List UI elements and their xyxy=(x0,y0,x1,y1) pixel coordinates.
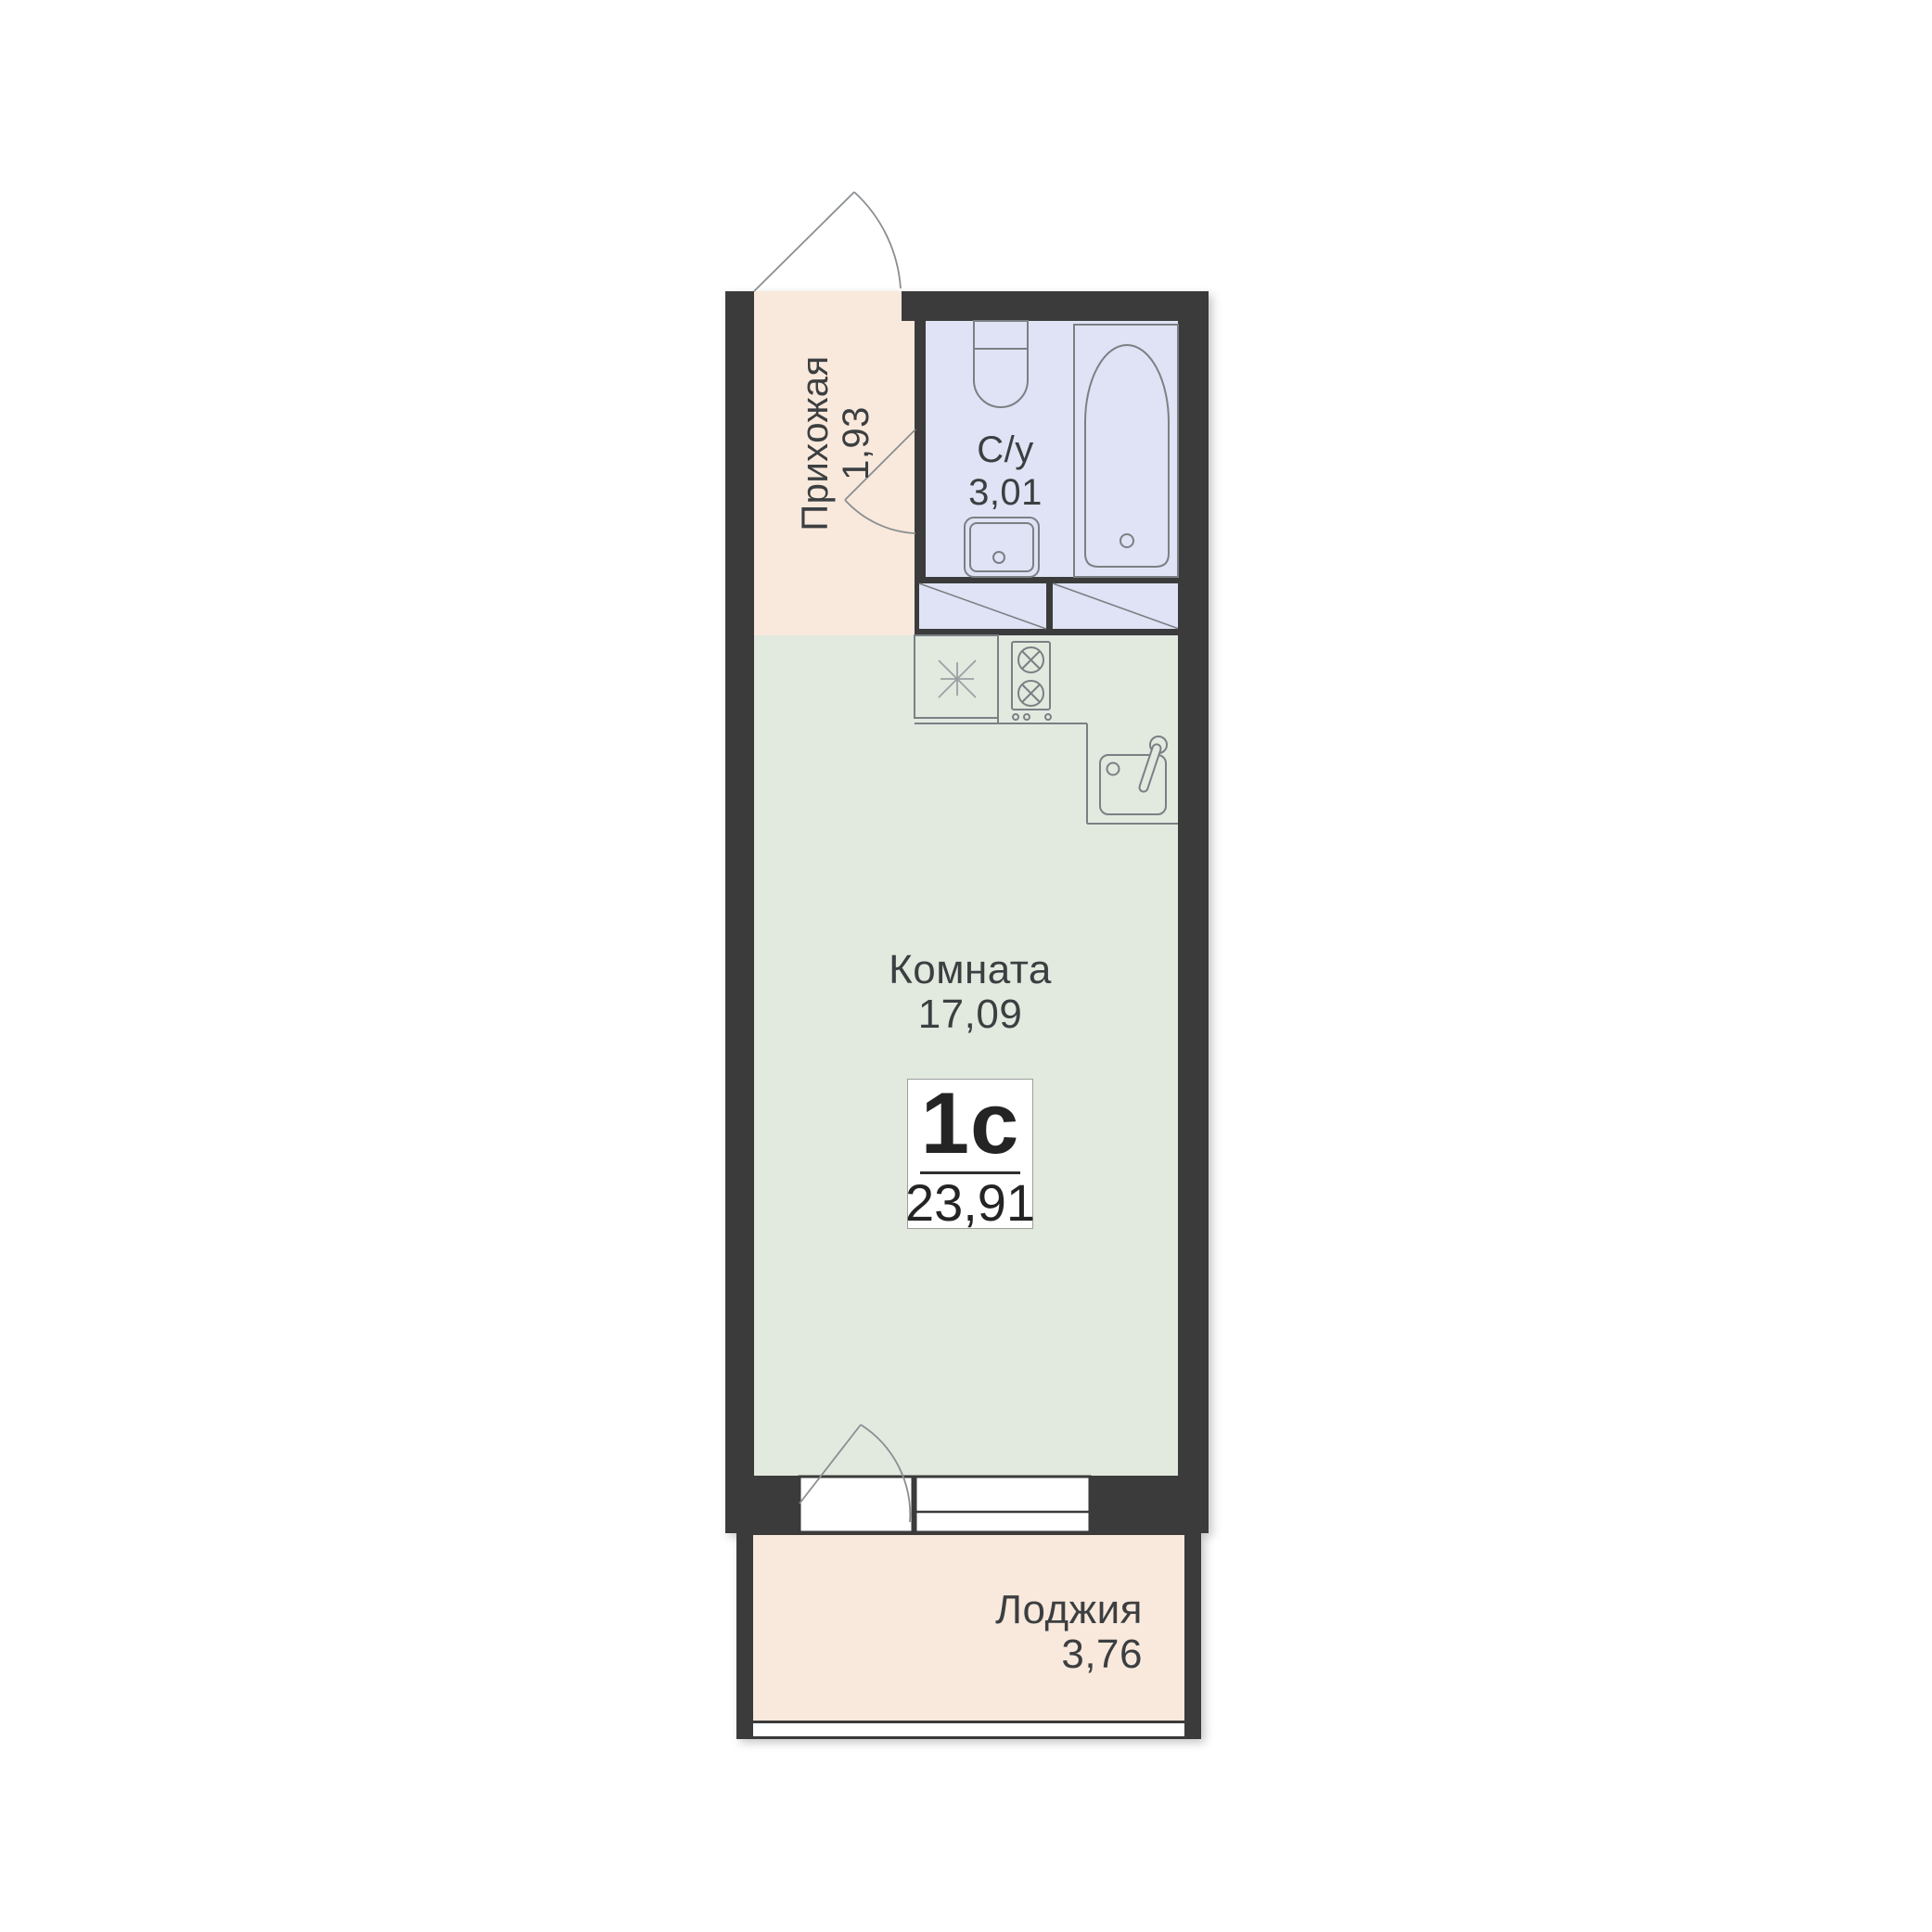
wall-hall-bath-upper xyxy=(915,321,926,429)
wall-hall-bath-lower xyxy=(915,533,926,577)
bathroom-name: С/у xyxy=(968,429,1043,471)
bathroom-label: С/у 3,01 xyxy=(968,429,1043,514)
loggia-label: Лоджия 3,76 xyxy=(995,1588,1143,1677)
floor-plan: Прихожая 1,93 С/у 3,01 Комната 17,09 Лод… xyxy=(0,0,1932,1932)
window-icon xyxy=(915,1477,1090,1532)
balcony-door-leaf-area xyxy=(800,1477,913,1532)
hallway-label: Прихожая 1,93 xyxy=(795,355,876,531)
star-symbol-icon xyxy=(939,660,976,697)
wall-right xyxy=(1178,291,1209,1533)
wall-bottom-left xyxy=(725,1476,800,1533)
wall-top xyxy=(902,291,1209,321)
room-area: 17,09 xyxy=(889,992,1052,1037)
room-name: Комната xyxy=(889,948,1052,992)
ventilation-hatch-icon xyxy=(1053,583,1179,629)
ventilation-hatch-icon xyxy=(919,583,1046,629)
unit-type: 1с xyxy=(921,1083,1020,1163)
hallway-name: Прихожая xyxy=(795,355,836,531)
room-label: Комната 17,09 xyxy=(889,948,1052,1037)
loggia-name: Лоджия xyxy=(995,1588,1143,1632)
entrance-door-swing-icon xyxy=(754,192,901,291)
loggia-glazing-band xyxy=(753,1723,1184,1736)
loggia-area: 3,76 xyxy=(995,1632,1143,1677)
bathroom-area: 3,01 xyxy=(968,471,1043,514)
unit-type-badge: 1с 23,91 xyxy=(907,1079,1033,1229)
wall-left xyxy=(725,291,754,1533)
wall-bottom-right xyxy=(1090,1476,1209,1533)
bathroom-floor xyxy=(926,321,1178,577)
hallway-area: 1,93 xyxy=(836,355,876,531)
unit-total-area: 23,91 xyxy=(905,1181,1035,1225)
room-floor xyxy=(754,635,1178,1476)
